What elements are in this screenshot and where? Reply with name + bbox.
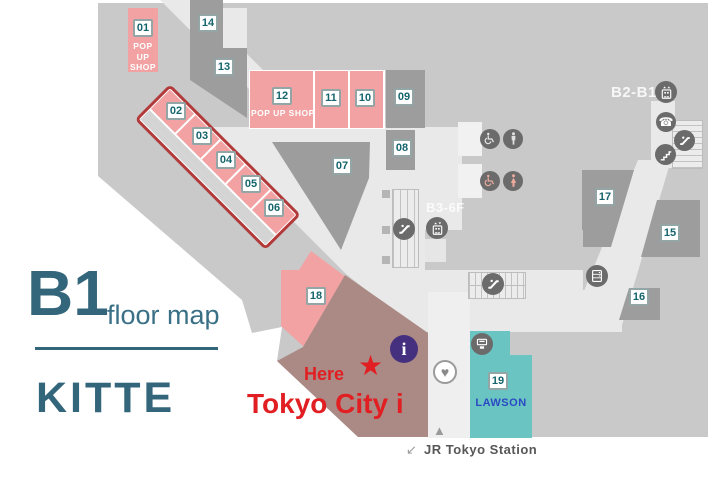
popup-shop-01-label: POP UP SHOP (126, 41, 160, 73)
womens-toilet-icon (503, 171, 523, 191)
elevator-icon-central (426, 217, 448, 239)
escalator-glyph (397, 222, 412, 237)
unit-label-03: 03 (192, 127, 212, 145)
lawson-label: LAWSON (470, 397, 532, 409)
stairs-icon (655, 144, 676, 165)
man-glyph (508, 132, 519, 146)
station-triangle-icon: ▲ (433, 424, 446, 437)
stairs-glyph (659, 148, 673, 162)
map-furniture-square-1 (382, 190, 390, 198)
building-name: KITTE (36, 374, 175, 423)
title-underline (35, 347, 218, 350)
unit-label-04: 04 (216, 151, 236, 169)
woman-glyph (508, 174, 519, 188)
wheelchair-glyph (483, 132, 497, 146)
unit-label-02: 02 (166, 102, 186, 120)
unit-label-15: 15 (660, 224, 680, 242)
wheelchair-glyph (483, 174, 497, 188)
escalator-icon-topright (674, 130, 695, 151)
unit-label-16: 16 (629, 288, 649, 306)
b2-b1-label: B2-B1 (611, 84, 657, 101)
elevator-landing (425, 239, 446, 262)
corridor-east-of-08 (415, 128, 460, 194)
elevator-icon (655, 81, 677, 103)
restroom-alcove-bottom (458, 164, 482, 198)
unit-label-10: 10 (355, 89, 375, 107)
unit-label-09: 09 (394, 88, 414, 106)
gray-band-mid (425, 230, 583, 270)
heart-glyph: ♥ (441, 365, 449, 379)
unit-label-11: 11 (321, 89, 341, 107)
locker-glyph (590, 269, 604, 283)
info-glyph: i (401, 340, 406, 358)
accessible-toilet-icon-women (480, 171, 500, 191)
information-icon: i (390, 335, 418, 363)
b3-6f-label: B3-6F (426, 200, 465, 215)
aed-heart-icon: ♥ (433, 360, 457, 384)
floor-title: B1 (27, 258, 109, 328)
atm-icon (471, 333, 493, 355)
unit-label-07: 07 (332, 157, 352, 175)
coin-locker-icon (586, 265, 608, 287)
mens-toilet-icon (503, 129, 523, 149)
unit-label-18: 18 (306, 287, 326, 305)
accessible-toilet-icon-men (480, 129, 500, 149)
floor-subtitle: floor map (107, 300, 220, 331)
elevator-glyph (659, 85, 674, 100)
atm-glyph (475, 337, 489, 351)
restroom-alcove-top (458, 122, 482, 156)
unit-label-12: 12 (272, 87, 292, 105)
notch-near-14 (223, 8, 247, 48)
escalator-glyph (486, 277, 501, 292)
unit-label-05: 05 (241, 175, 261, 193)
escalator-glyph (678, 134, 692, 148)
here-label: Here (304, 364, 344, 385)
unit-label-06: 06 (264, 199, 284, 217)
escalator-icon-central (393, 218, 415, 240)
unit-label-14: 14 (198, 14, 218, 32)
jr-tokyo-station-label: JR Tokyo Station (424, 442, 537, 457)
here-star-icon: ★ (358, 352, 383, 380)
public-phone-icon: ☎ (656, 112, 676, 132)
map-furniture-square-2 (382, 226, 390, 234)
kitte-b1-floor-map: B2-B1 ☎ (0, 0, 720, 480)
unit-label-17: 17 (595, 188, 615, 206)
unit-label-13: 13 (214, 58, 234, 76)
unit-label-01: 01 (133, 19, 153, 37)
unit-label-08: 08 (392, 139, 412, 157)
escalator-icon-bottom (482, 273, 504, 295)
tokyo-city-i-label: Tokyo City i (247, 388, 404, 420)
popup-shop-12-label: POP UP SHOP (251, 108, 313, 119)
station-arrow-icon: ↙ (406, 443, 417, 456)
elevator-glyph (430, 221, 445, 236)
map-furniture-square-3 (382, 256, 390, 264)
phone-glyph: ☎ (659, 116, 674, 128)
unit-label-19: 19 (488, 372, 508, 390)
